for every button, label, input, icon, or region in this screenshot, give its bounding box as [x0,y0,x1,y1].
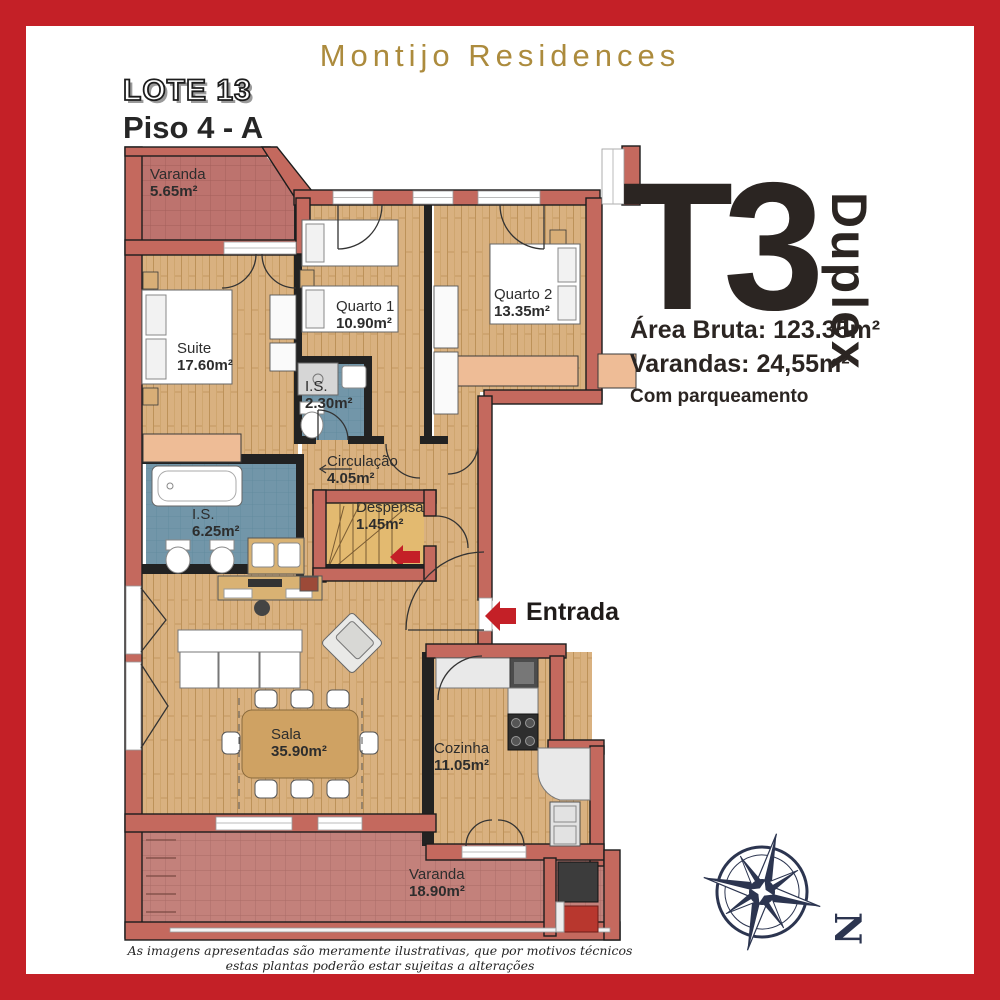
sofa-back [178,630,302,652]
desk-cabinet [300,577,318,591]
compass-rose-icon [689,819,834,964]
toilet [166,547,190,573]
lote-label: LOTE 13 [123,74,252,108]
room-label-is-small: I.S. 2.30m² [305,378,353,412]
room-name: Quarto 1 [336,298,394,315]
room-label-cozinha: Cozinha 11.05m² [434,740,489,774]
storage-box [558,862,598,902]
room-label-quarto1: Quarto 1 10.90m² [336,298,394,332]
room-label-is-large: I.S. 6.25m² [192,506,240,540]
unit-type: T3 [622,176,814,318]
sala-floor [140,572,436,822]
kitchen-sink-basin [514,662,534,684]
burner [512,719,521,728]
room-name: I.S. [192,506,240,523]
room-name: Varanda [150,166,206,183]
floor-plan-drawing: N [0,0,1000,1000]
room-area: 2.30m² [305,395,353,412]
floor-label: Piso 4 - A [123,110,263,146]
room-label-varanda-bottom: Varanda 18.90m² [409,866,465,900]
room-area: 5.65m² [150,183,206,200]
room-label-circulacao: Circulação 4.05m² [327,453,398,487]
room-area: 10.90m² [336,315,394,332]
unit-variant: Duplex [820,192,878,412]
room-area: 4.05m² [327,470,398,487]
burner [512,737,521,746]
pillow [558,286,576,320]
room-name: Circulação [327,453,398,470]
floor-plan-poster: N Montijo Residences LOTE 13 Piso 4 - A … [0,0,1000,1000]
pillow [306,224,324,262]
pillow [146,295,166,335]
vanity-sink [278,543,300,567]
room-area: 35.90m² [271,743,327,760]
room-name: Suite [177,340,233,357]
pillow [146,339,166,379]
kitchen-counter-side [508,688,538,714]
burner [526,719,535,728]
room-name: Sala [271,726,327,743]
vanity-sink [252,543,274,567]
bidet [210,547,234,573]
room-area: 11.05m² [434,757,489,774]
sofa-seat [180,652,218,688]
room-area: 13.35m² [494,303,552,320]
sofa-seat [219,652,259,688]
brand-title: Montijo Residences [0,38,1000,74]
room-name: Cozinha [434,740,489,757]
room-label-despensa: Despensa 1.45m² [356,499,424,533]
sofa-seat [260,652,300,688]
room-name: Varanda [409,866,465,883]
room-name: Quarto 2 [494,286,552,303]
room-label-sala: Sala 35.90m² [271,726,327,760]
desk-chair [254,600,270,616]
parking-note: Com parqueamento [630,386,808,408]
room-label-suite: Suite 17.60m² [177,340,233,374]
balconies-area: Varandas: 24,55m² [630,350,850,379]
pillow [558,248,576,282]
disclaimer-text: As imagens apresentadas são meramente il… [120,943,640,973]
room-label-quarto2: Quarto 2 13.35m² [494,286,552,320]
compass-north-label: N [826,912,868,945]
room-area: 18.90m² [409,883,465,900]
balcony-bench-side [556,902,564,932]
room-name: I.S. [305,378,353,395]
stove [508,714,538,750]
balcony-bench [560,906,598,932]
burner [526,737,535,746]
desk-papers [224,589,252,598]
room-name: Despensa [356,499,424,516]
entrance-label: Entrada [526,598,619,627]
pillow [306,290,324,328]
toilet [301,412,323,438]
gross-area: Área Bruta: 123.35m² [630,316,880,345]
room-area: 17.60m² [177,357,233,374]
room-area: 1.45m² [356,516,424,533]
room-area: 6.25m² [192,523,240,540]
bathtub [152,466,242,506]
room-label-varanda-top: Varanda 5.65m² [150,166,206,200]
desk-monitor [248,579,282,587]
